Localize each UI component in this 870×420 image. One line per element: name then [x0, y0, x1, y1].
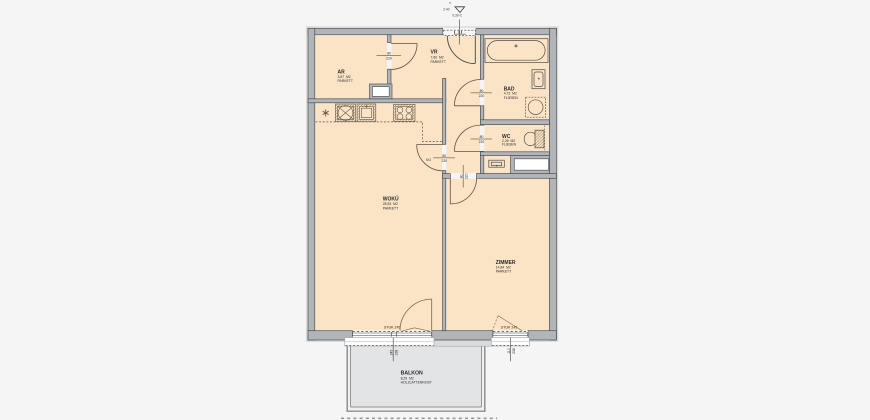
- svg-text:NG: NG: [426, 158, 431, 162]
- svg-text:80: 80: [459, 174, 463, 178]
- svg-text:8,29 M2: 8,29 M2: [401, 376, 414, 380]
- svg-text:220: 220: [386, 57, 392, 61]
- svg-text:80: 80: [480, 89, 484, 93]
- svg-text:PARKETT: PARKETT: [383, 206, 398, 210]
- svg-text:220: 220: [479, 140, 485, 144]
- svg-text:PARKETT: PARKETT: [338, 79, 353, 83]
- svg-text:238: 238: [512, 348, 516, 354]
- svg-text:PARKETT: PARKETT: [431, 60, 446, 64]
- svg-text:FLIESEN: FLIESEN: [502, 143, 517, 147]
- svg-text:0,30-C: 0,30-C: [453, 13, 463, 17]
- svg-text:2-40: 2-40: [443, 8, 450, 12]
- svg-text:80: 80: [442, 154, 446, 158]
- svg-text:PARKETT: PARKETT: [496, 270, 511, 274]
- svg-text:STUK 245: STUK 245: [501, 326, 517, 330]
- svg-text:80: 80: [480, 135, 484, 139]
- svg-text:245: 245: [389, 350, 393, 356]
- svg-text:STUK 245: STUK 245: [384, 326, 400, 330]
- svg-text:238: 238: [394, 350, 398, 356]
- svg-text:FLIESEN: FLIESEN: [504, 96, 519, 100]
- svg-text:HOLZLATTENROST: HOLZLATTENROST: [401, 381, 432, 385]
- svg-text:80: 80: [387, 52, 391, 56]
- svg-text:220: 220: [479, 94, 485, 98]
- svg-text:220: 220: [441, 159, 447, 163]
- svg-text:110: 110: [507, 348, 511, 354]
- svg-text:VR: VR: [431, 49, 438, 55]
- svg-text:220: 220: [464, 173, 468, 179]
